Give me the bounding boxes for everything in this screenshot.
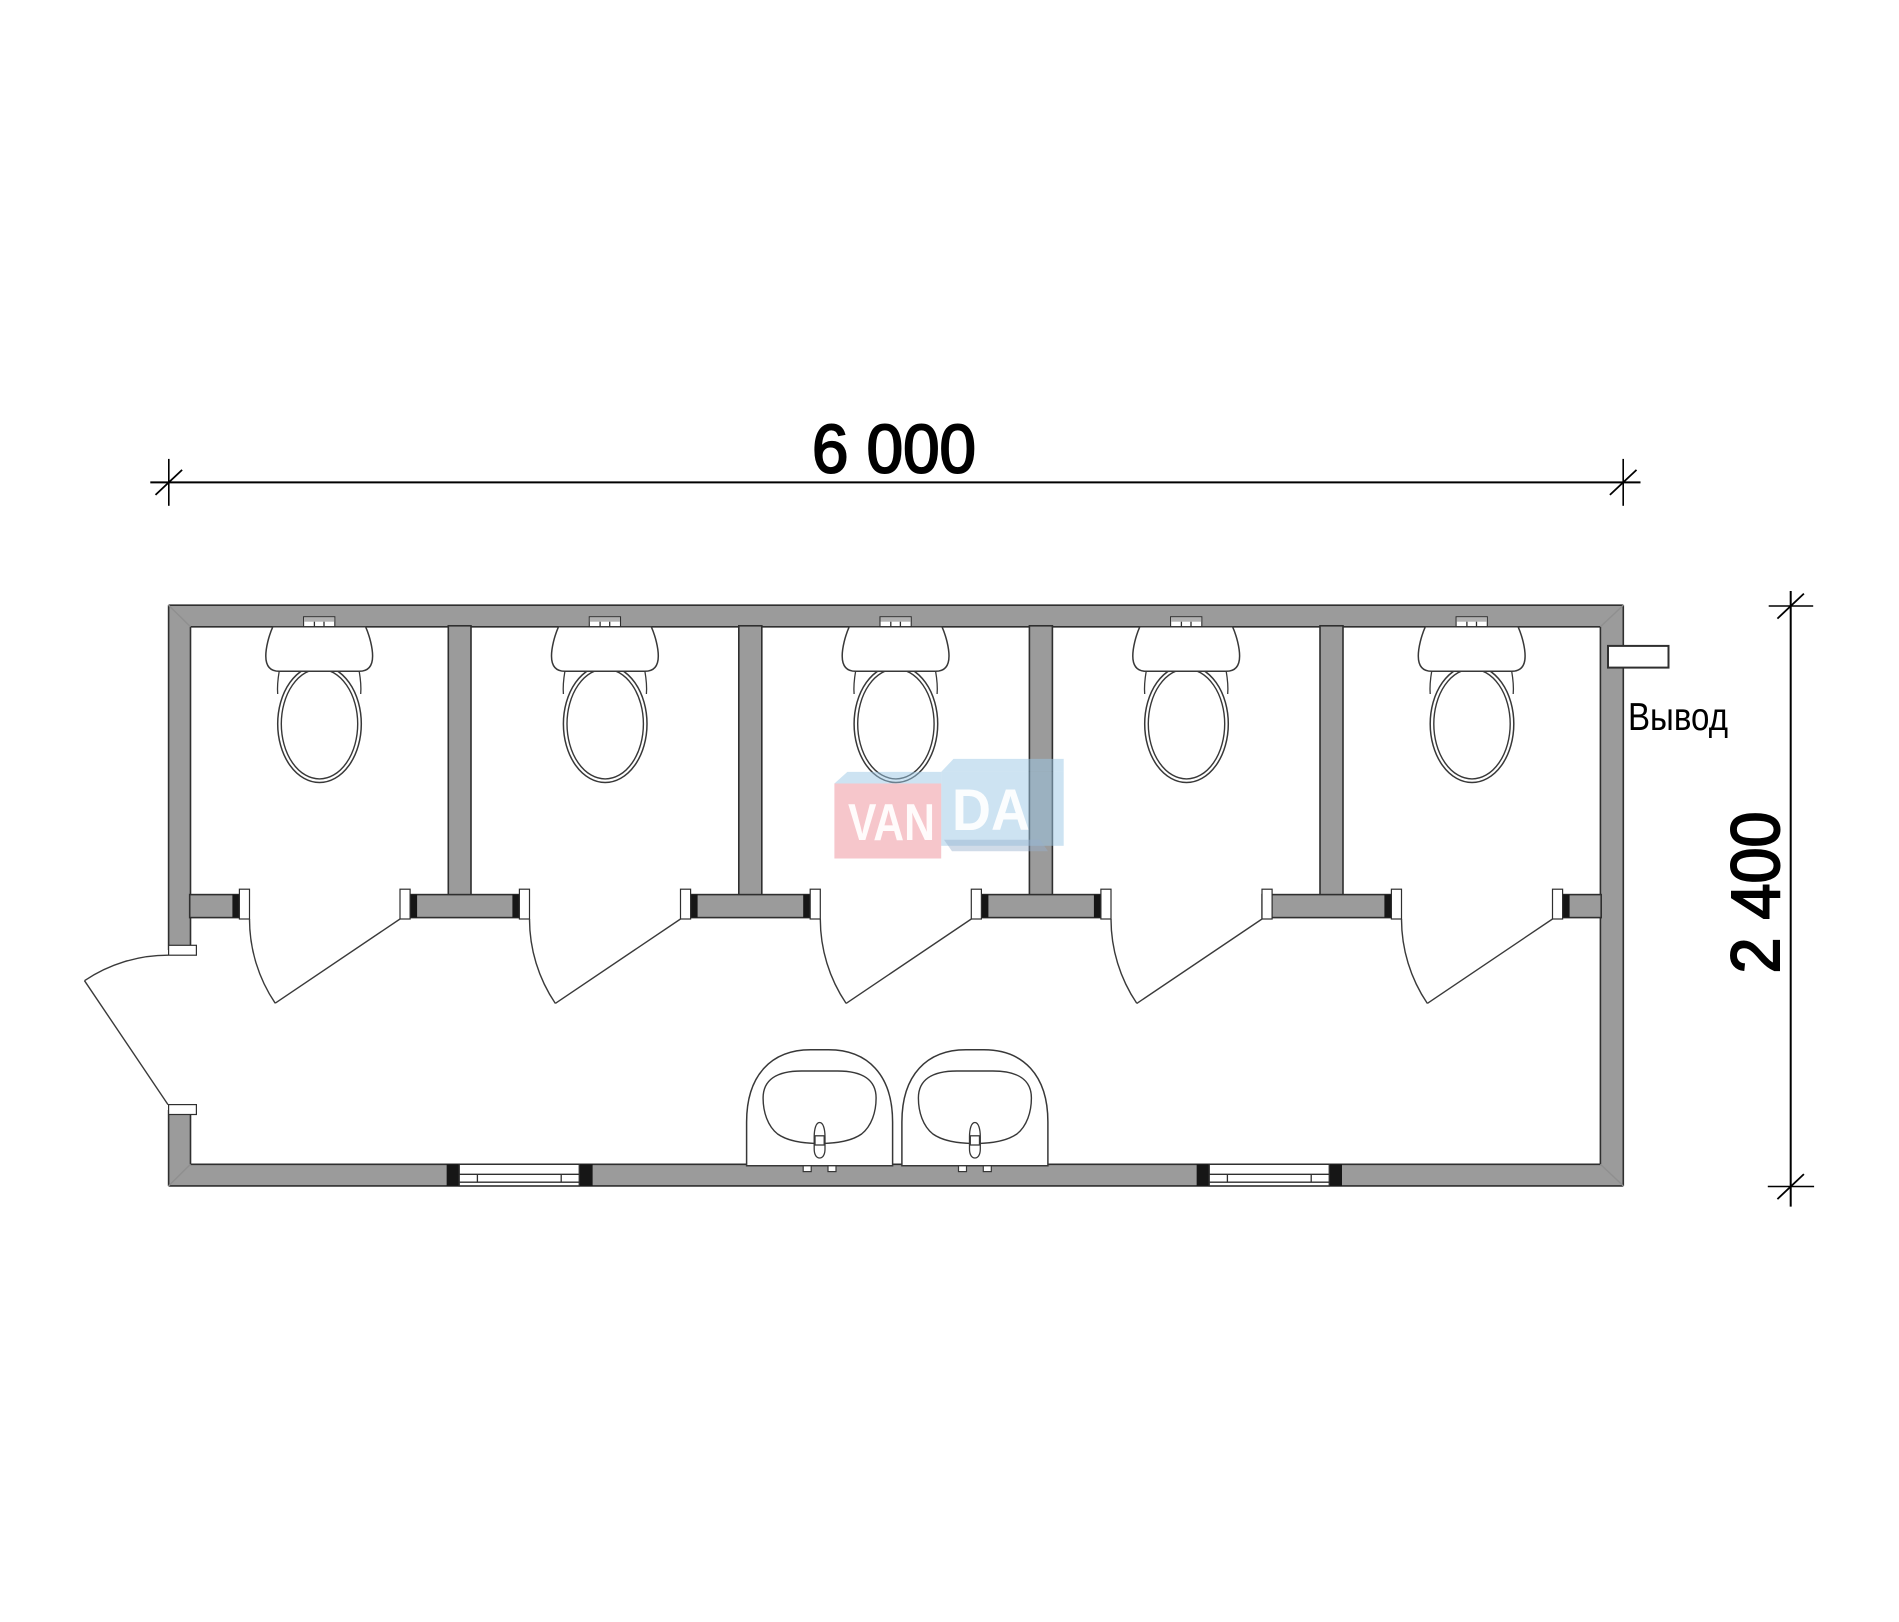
svg-text:6 000: 6 000 [812, 411, 976, 488]
svg-text:2 400: 2 400 [1717, 812, 1794, 974]
svg-text:DA: DA [952, 777, 1030, 842]
svg-text:VAN: VAN [848, 794, 935, 852]
svg-text:Вывод: Вывод [1628, 696, 1728, 739]
